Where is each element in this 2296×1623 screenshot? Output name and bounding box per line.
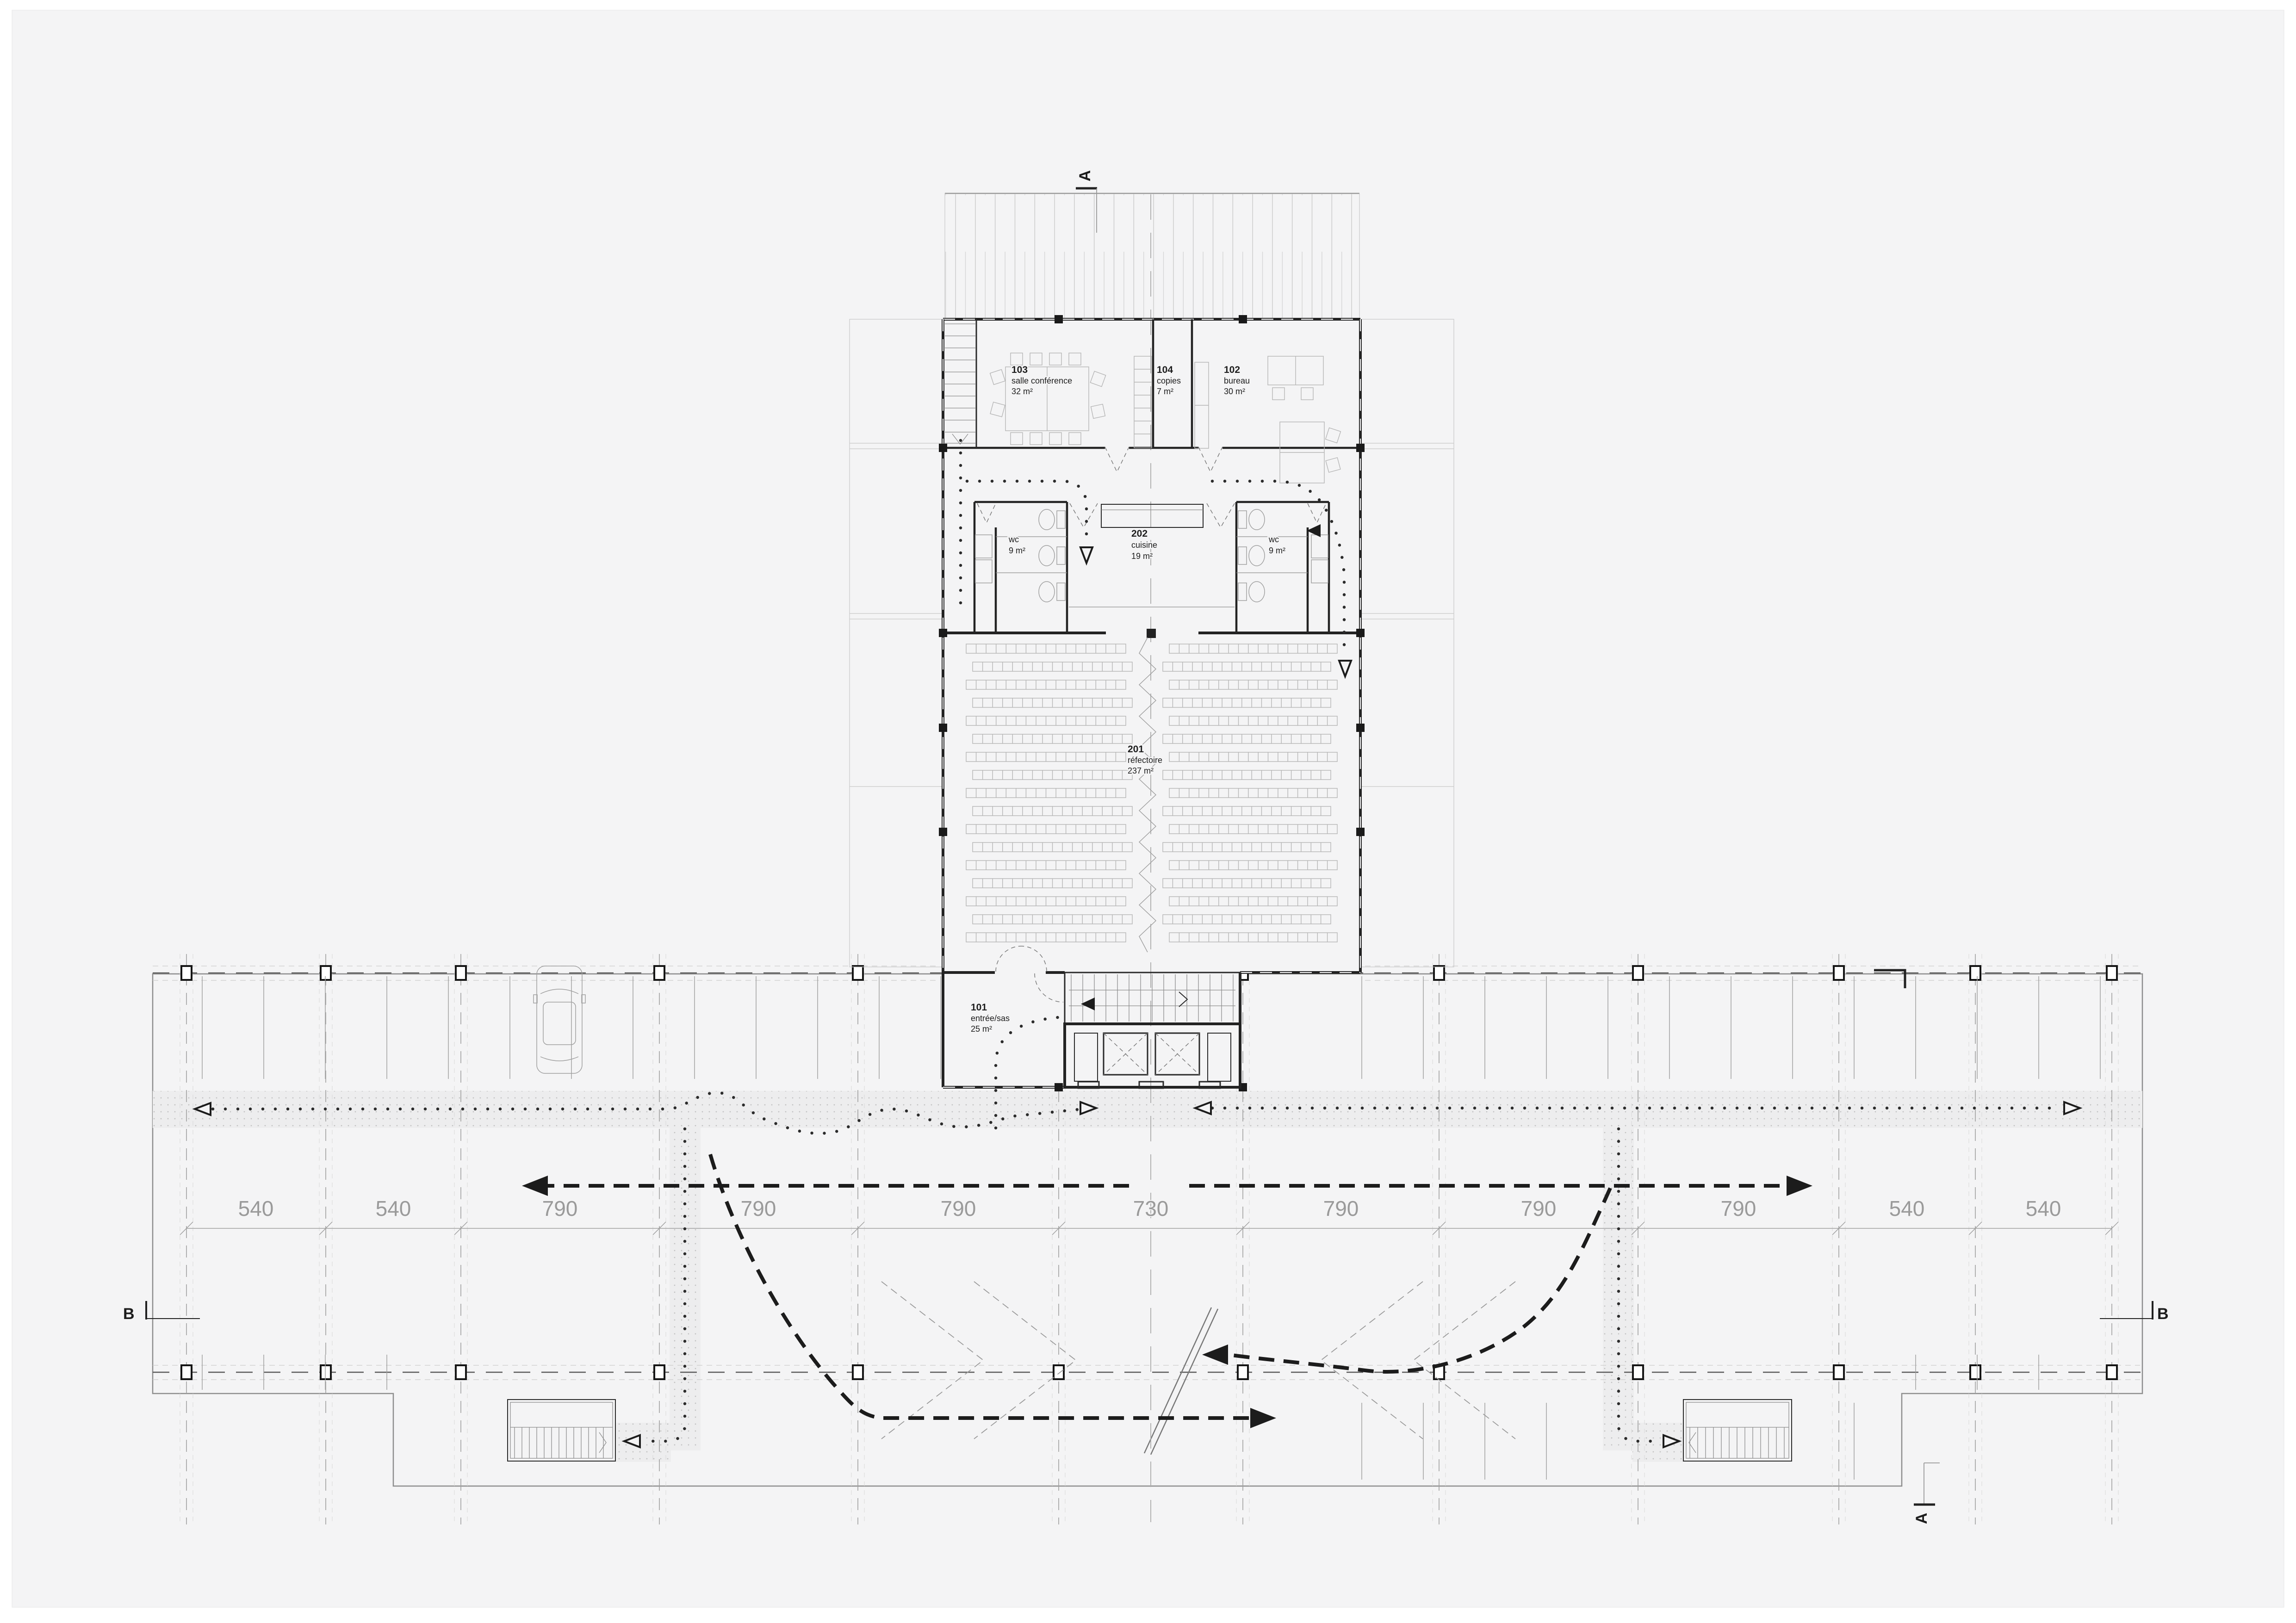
svg-text:A: A <box>1913 1513 1930 1524</box>
dim-value: 790 <box>1521 1196 1557 1220</box>
svg-text:salle conférence: salle conférence <box>1011 376 1072 385</box>
dim-value: 730 <box>1133 1196 1169 1220</box>
dim-value: 540 <box>238 1196 274 1220</box>
dim-value: 790 <box>1323 1196 1359 1220</box>
svg-text:7 m²: 7 m² <box>1157 387 1173 396</box>
walkway-strip-left <box>670 1127 701 1450</box>
svg-text:wc: wc <box>1008 535 1019 544</box>
svg-text:32 m²: 32 m² <box>1011 387 1033 396</box>
svg-text:réfectoire: réfectoire <box>1128 756 1162 765</box>
wall-post <box>1147 629 1156 638</box>
svg-text:104: 104 <box>1157 365 1173 375</box>
svg-text:102: 102 <box>1224 365 1240 375</box>
svg-text:9 m²: 9 m² <box>1269 546 1285 555</box>
svg-text:25 m²: 25 m² <box>971 1024 992 1034</box>
dim-value: 790 <box>542 1196 578 1220</box>
svg-text:copies: copies <box>1157 376 1181 385</box>
dim-value: 540 <box>1889 1196 1925 1220</box>
svg-text:202: 202 <box>1131 528 1148 539</box>
floor-plan-drawing: 540 540 790 790 790 730 790 790 790 540 … <box>0 0 2296 1623</box>
svg-text:101: 101 <box>971 1002 987 1013</box>
svg-text:wc: wc <box>1268 535 1279 544</box>
dim-value: 540 <box>2026 1196 2061 1220</box>
dim-value: 790 <box>1721 1196 1756 1220</box>
svg-text:A: A <box>1076 170 1094 182</box>
walkway-strip-right <box>1603 1127 1634 1450</box>
svg-text:237 m²: 237 m² <box>1128 766 1154 775</box>
dim-value: 790 <box>941 1196 976 1220</box>
dim-value: 540 <box>376 1196 411 1220</box>
svg-text:entrée/sas: entrée/sas <box>971 1014 1010 1023</box>
svg-text:201: 201 <box>1128 744 1144 755</box>
drawing-sheet: 540 540 790 790 790 730 790 790 790 540 … <box>0 0 2296 1623</box>
walkway-apron-left <box>615 1423 671 1462</box>
svg-text:9 m²: 9 m² <box>1009 546 1025 555</box>
svg-text:30 m²: 30 m² <box>1224 387 1245 396</box>
svg-text:bureau: bureau <box>1224 376 1250 385</box>
svg-text:19 m²: 19 m² <box>1131 551 1153 561</box>
roof-hatch <box>945 194 1359 320</box>
svg-text:103: 103 <box>1011 365 1028 375</box>
svg-text:B: B <box>2157 1305 2169 1323</box>
svg-text:cuisine: cuisine <box>1131 540 1157 550</box>
svg-text:B: B <box>123 1305 135 1323</box>
dim-value: 790 <box>741 1196 776 1220</box>
